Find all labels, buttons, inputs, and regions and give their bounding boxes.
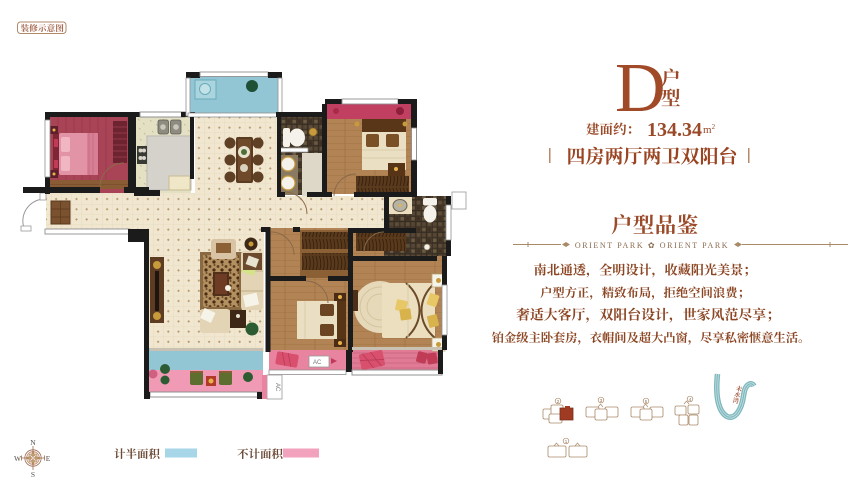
svg-text:W: W xyxy=(14,454,22,463)
svg-text:AC: AC xyxy=(313,360,322,366)
svg-text:E: E xyxy=(46,454,51,463)
svg-text:N: N xyxy=(30,438,36,447)
svg-text:D: D xyxy=(615,50,666,127)
svg-text:S: S xyxy=(31,470,35,479)
svg-text:AC: AC xyxy=(274,383,280,392)
svg-text:ORIENT PARK ✿ ORIENT PARK: ORIENT PARK ✿ ORIENT PARK xyxy=(575,241,729,250)
svg-text:134.34: 134.34 xyxy=(647,119,702,141)
